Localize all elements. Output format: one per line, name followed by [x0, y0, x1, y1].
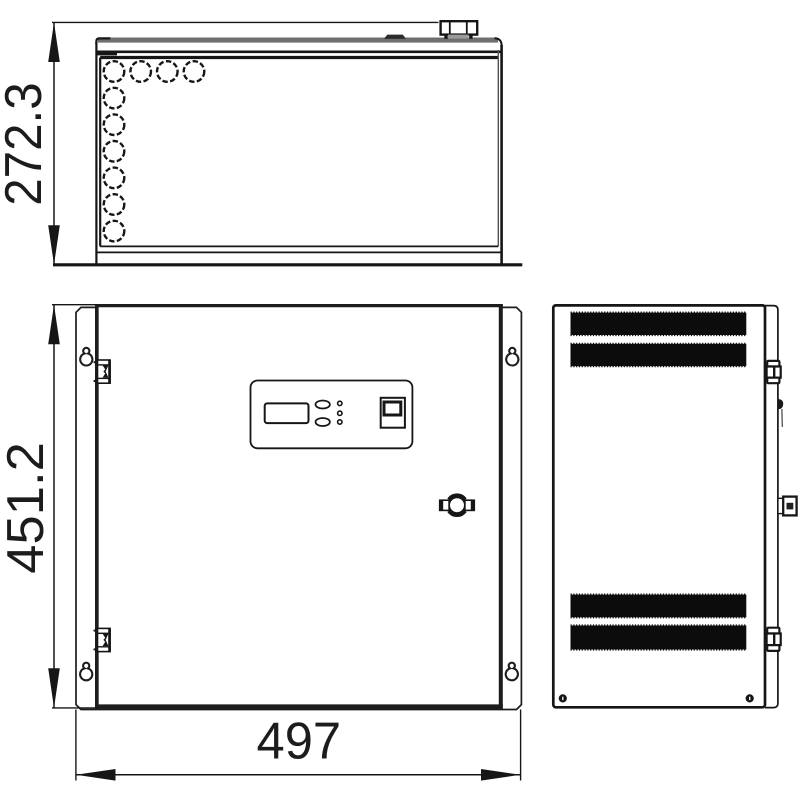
svg-text:272.3: 272.3	[0, 82, 53, 206]
svg-text:451.2: 451.2	[0, 442, 55, 574]
svg-text:497: 497	[257, 713, 342, 771]
